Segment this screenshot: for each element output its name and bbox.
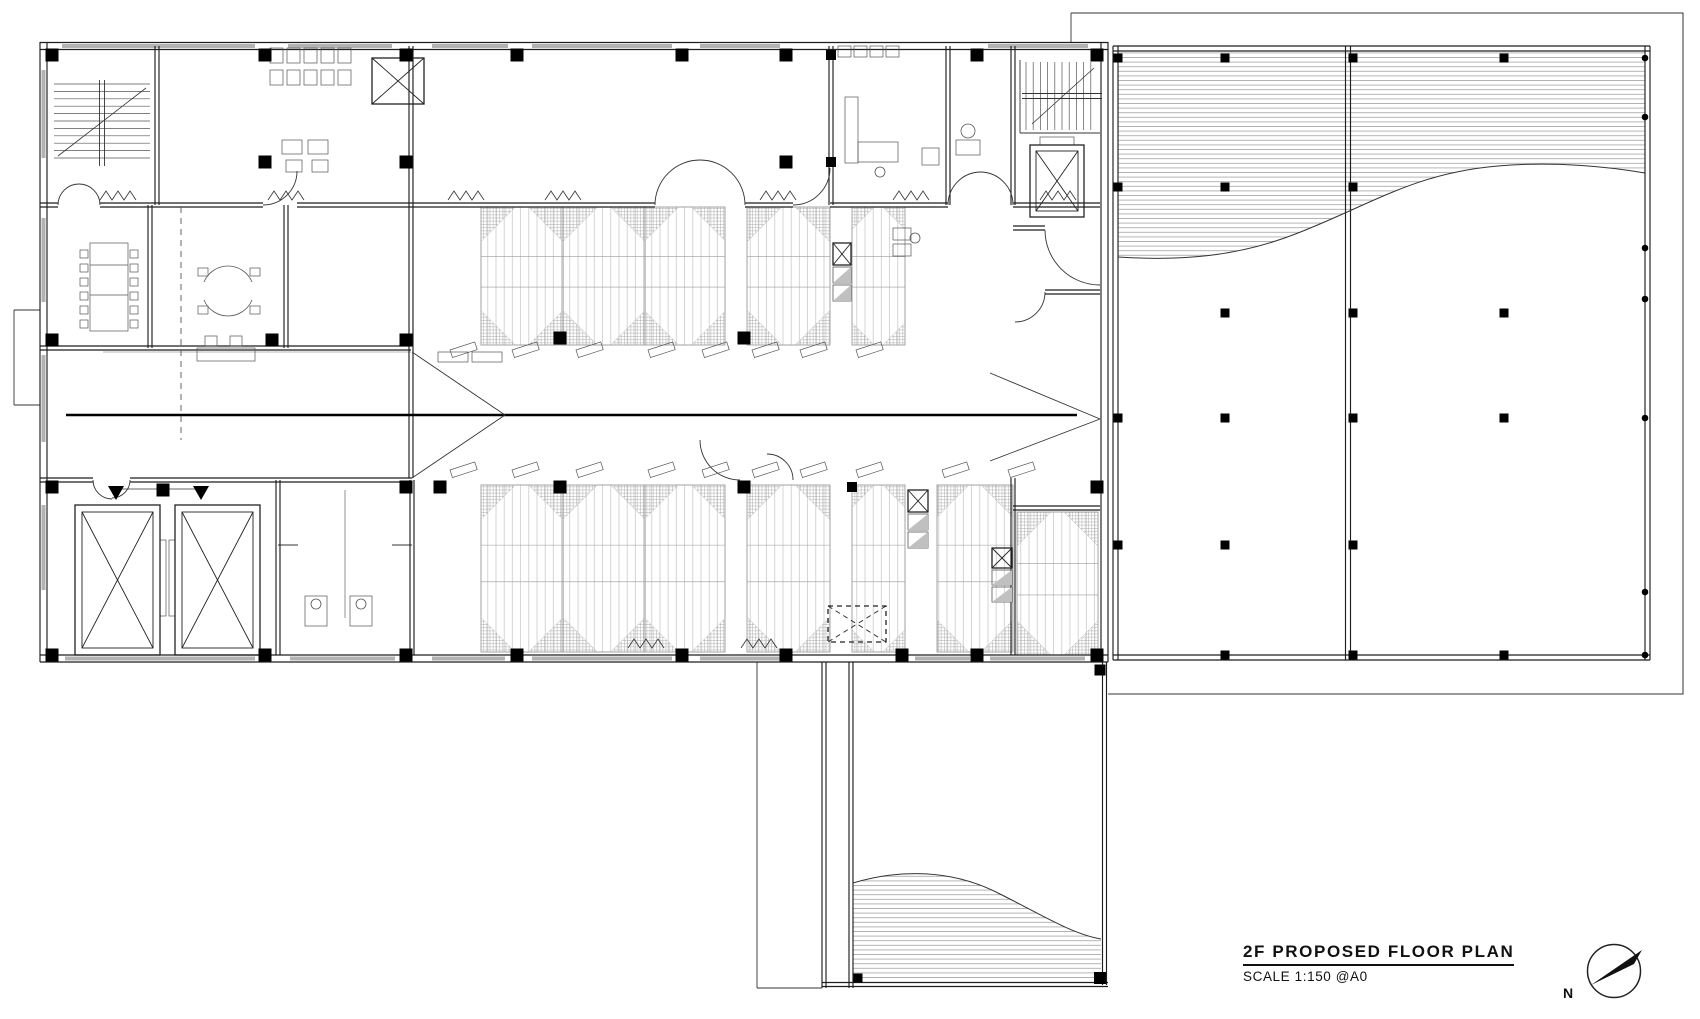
title-block: 2F PROPOSED FLOOR PLAN SCALE 1:150 @A0 — [1243, 942, 1514, 984]
drawing-scale: SCALE 1:150 @A0 — [1243, 969, 1514, 984]
north-label: N — [1563, 985, 1573, 1001]
floor-plan-page: 2F PROPOSED FLOOR PLAN SCALE 1:150 @A0 N — [0, 0, 1700, 1019]
north-arrow-icon — [1588, 945, 1643, 998]
floor-plan-drawing — [0, 0, 1700, 1019]
drawing-title: 2F PROPOSED FLOOR PLAN — [1243, 942, 1514, 966]
